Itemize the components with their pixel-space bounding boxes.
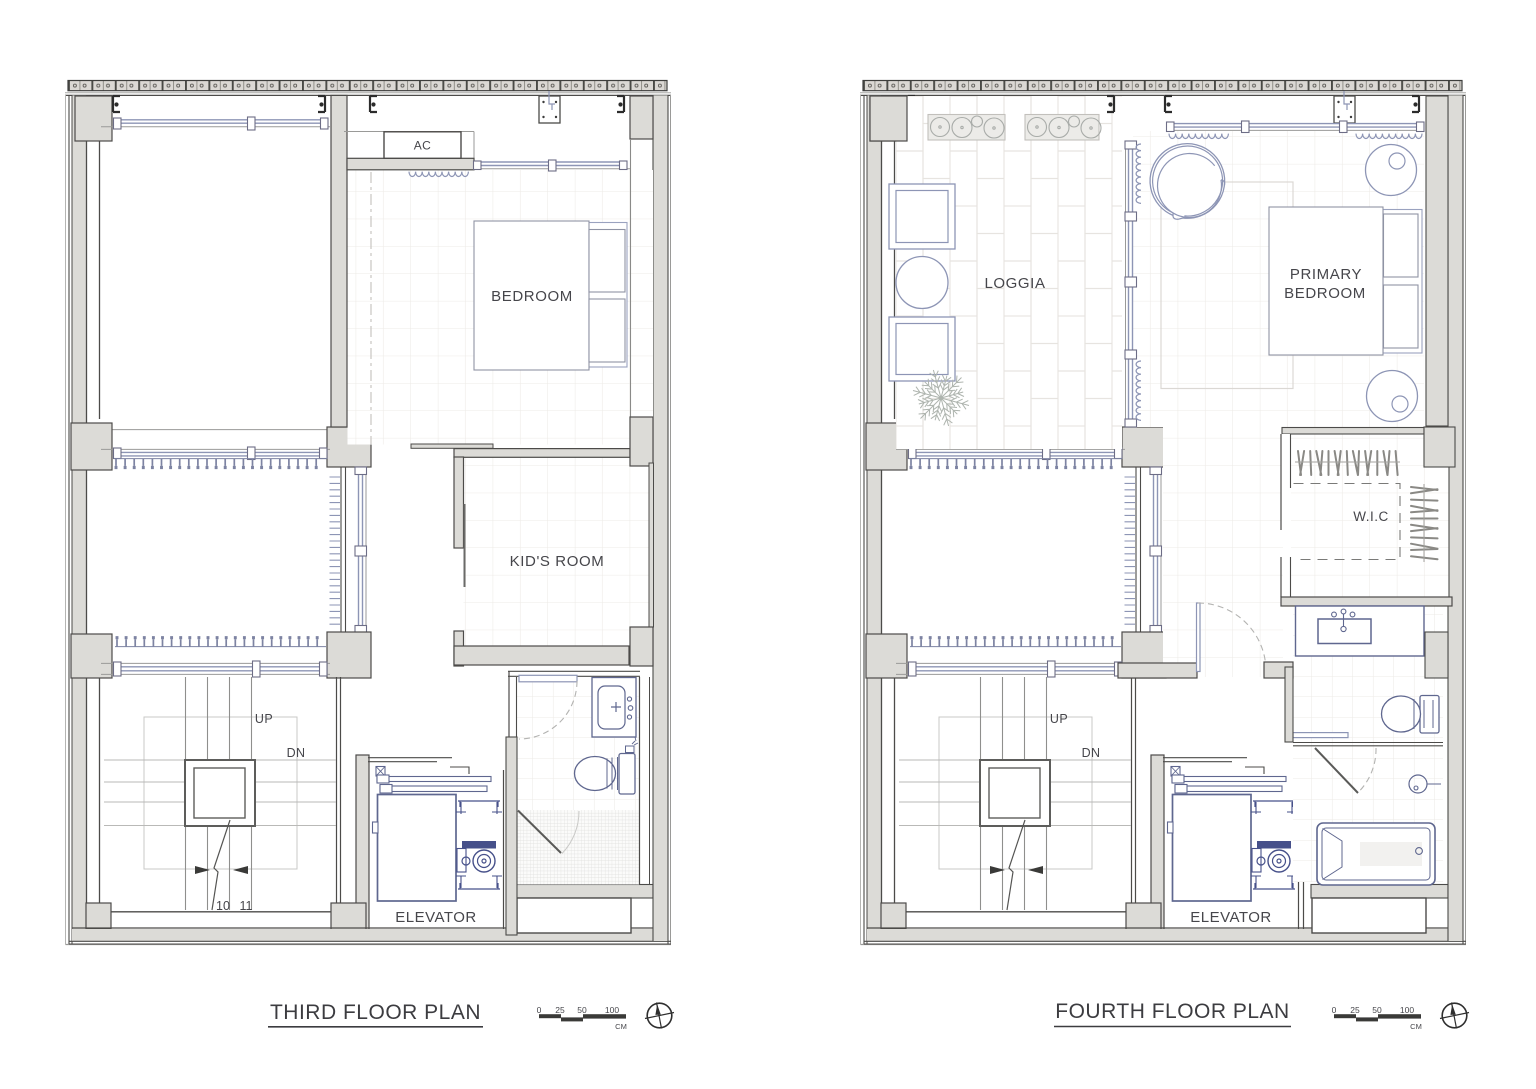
svg-text:BEDROOM: BEDROOM (491, 288, 573, 305)
svg-text:PRIMARY: PRIMARY (1290, 266, 1362, 283)
svg-text:BEDROOM: BEDROOM (1284, 285, 1366, 302)
svg-text:W.I.C: W.I.C (1353, 509, 1389, 524)
svg-text:11: 11 (240, 899, 253, 913)
svg-text:THIRD FLOOR PLAN: THIRD FLOOR PLAN (270, 1001, 481, 1024)
svg-text:10: 10 (216, 899, 230, 913)
svg-text:LOGGIA: LOGGIA (984, 275, 1045, 292)
svg-text:FOURTH FLOOR PLAN: FOURTH FLOOR PLAN (1055, 1000, 1289, 1023)
svg-text:KID'S ROOM: KID'S ROOM (510, 553, 605, 570)
svg-text:AC: AC (414, 139, 431, 153)
